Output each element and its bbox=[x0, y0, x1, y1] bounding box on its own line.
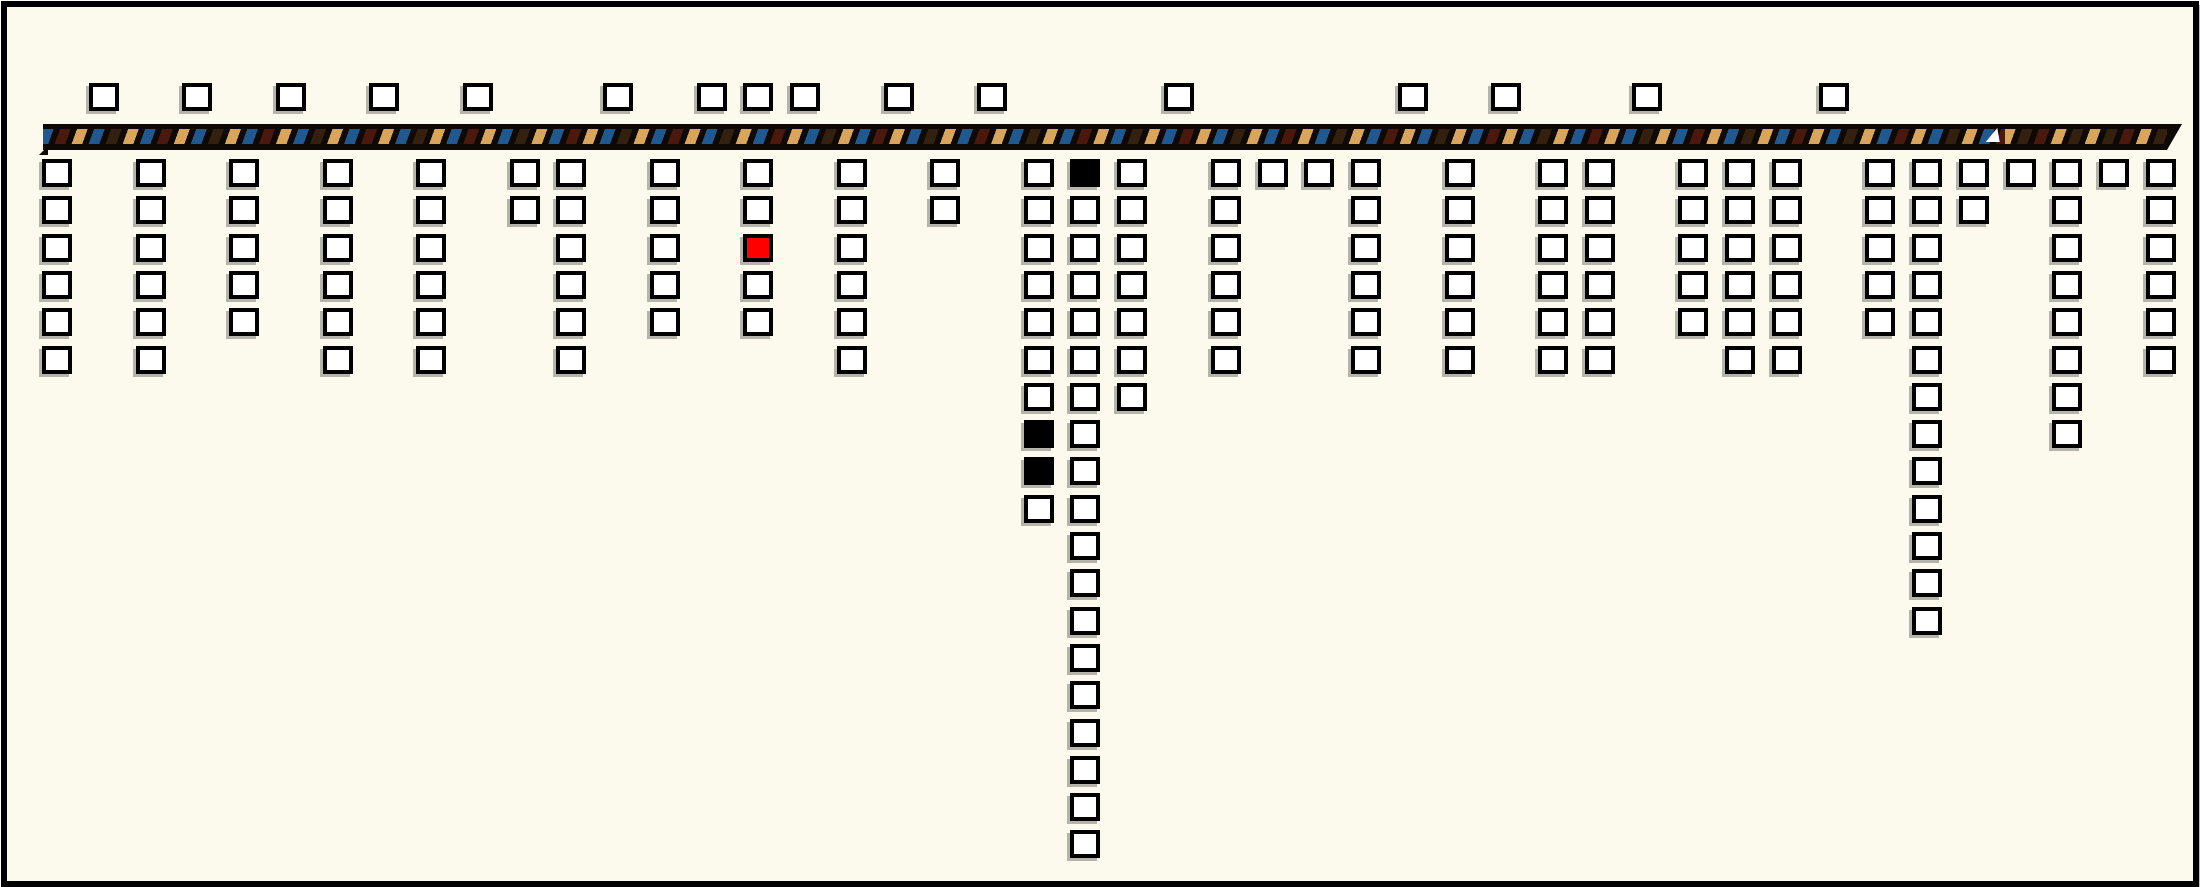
pendant-square[interactable] bbox=[1772, 159, 1802, 187]
pendant-square-black[interactable] bbox=[1024, 457, 1054, 485]
pendant-square[interactable] bbox=[323, 234, 353, 262]
pendant-square[interactable] bbox=[1912, 607, 1942, 635]
pendant-square[interactable] bbox=[42, 159, 72, 187]
pendant-square[interactable] bbox=[1117, 196, 1147, 224]
pendant-square[interactable] bbox=[1538, 234, 1568, 262]
pendant-square[interactable] bbox=[1024, 196, 1054, 224]
pendant-square[interactable] bbox=[1538, 159, 1568, 187]
pendant-square[interactable] bbox=[930, 159, 960, 187]
pendant-square[interactable] bbox=[650, 308, 680, 336]
pendant-square[interactable] bbox=[1351, 346, 1381, 374]
pendant-square[interactable] bbox=[1117, 234, 1147, 262]
pendant-square[interactable] bbox=[229, 271, 259, 299]
pendant-square[interactable] bbox=[1912, 457, 1942, 485]
pendant-square[interactable] bbox=[1070, 569, 1100, 597]
pendant-square[interactable] bbox=[556, 271, 586, 299]
pendant-square[interactable] bbox=[1070, 793, 1100, 821]
pendant-square[interactable] bbox=[1070, 383, 1100, 411]
pendant-square[interactable] bbox=[1538, 308, 1568, 336]
pendant-square[interactable] bbox=[1725, 308, 1755, 336]
pendant-square[interactable] bbox=[136, 308, 166, 336]
pendant-square[interactable] bbox=[1070, 234, 1100, 262]
pendant-square[interactable] bbox=[743, 271, 773, 299]
pendant-square[interactable] bbox=[1070, 756, 1100, 784]
main-cord-stripes-right-section bbox=[2005, 129, 2167, 144]
pendant-square[interactable] bbox=[1585, 271, 1615, 299]
pendant-square[interactable] bbox=[1912, 532, 1942, 560]
pendant-square[interactable] bbox=[1117, 271, 1147, 299]
pendant-square[interactable] bbox=[1912, 271, 1942, 299]
pendant-square[interactable] bbox=[1585, 159, 1615, 187]
pendant-square[interactable] bbox=[1070, 271, 1100, 299]
pendant-square[interactable] bbox=[2052, 346, 2082, 374]
pendant-square[interactable] bbox=[1024, 308, 1054, 336]
pendant-square[interactable] bbox=[42, 308, 72, 336]
pendant-square[interactable] bbox=[837, 196, 867, 224]
pendant-square[interactable] bbox=[1912, 420, 1942, 448]
pendant-square[interactable] bbox=[1959, 159, 1989, 187]
pendant-square[interactable] bbox=[1024, 234, 1054, 262]
pendant-square[interactable] bbox=[1912, 234, 1942, 262]
top-square[interactable] bbox=[1398, 83, 1428, 111]
pendant-square[interactable] bbox=[416, 308, 446, 336]
top-square[interactable] bbox=[884, 83, 914, 111]
pendant-square[interactable] bbox=[1678, 159, 1708, 187]
pendant-square[interactable] bbox=[2052, 159, 2082, 187]
pendant-square[interactable] bbox=[2146, 196, 2176, 224]
top-square[interactable] bbox=[977, 83, 1007, 111]
pendant-square[interactable] bbox=[1117, 308, 1147, 336]
top-square[interactable] bbox=[1632, 83, 1662, 111]
pendant-square-red[interactable] bbox=[743, 234, 773, 262]
pendant-square[interactable] bbox=[2052, 420, 2082, 448]
pendant-square[interactable] bbox=[1585, 308, 1615, 336]
pendant-square[interactable] bbox=[1725, 159, 1755, 187]
pendant-square[interactable] bbox=[1070, 607, 1100, 635]
pendant-square[interactable] bbox=[1772, 346, 1802, 374]
pendant-square[interactable] bbox=[1445, 346, 1475, 374]
pendant-square[interactable] bbox=[323, 308, 353, 336]
pendant-square[interactable] bbox=[1070, 644, 1100, 672]
pendant-square[interactable] bbox=[1678, 196, 1708, 224]
pendant-square[interactable] bbox=[42, 271, 72, 299]
pendant-square[interactable] bbox=[1070, 196, 1100, 224]
pendant-square[interactable] bbox=[1912, 569, 1942, 597]
pendant-square[interactable] bbox=[1772, 196, 1802, 224]
pendant-square[interactable] bbox=[1351, 271, 1381, 299]
pendant-square[interactable] bbox=[2099, 159, 2129, 187]
pendant-square[interactable] bbox=[1725, 234, 1755, 262]
pendant-square[interactable] bbox=[1538, 196, 1568, 224]
pendant-square[interactable] bbox=[1024, 346, 1054, 374]
pendant-square[interactable] bbox=[1024, 159, 1054, 187]
pendant-square[interactable] bbox=[2146, 271, 2176, 299]
pendant-square[interactable] bbox=[1959, 196, 1989, 224]
pendant-square[interactable] bbox=[1445, 308, 1475, 336]
top-square[interactable] bbox=[1819, 83, 1849, 111]
pendant-square[interactable] bbox=[1865, 271, 1895, 299]
pendant-square[interactable] bbox=[1585, 234, 1615, 262]
pendant-square[interactable] bbox=[1585, 346, 1615, 374]
pendant-square[interactable] bbox=[1070, 346, 1100, 374]
pendant-square[interactable] bbox=[323, 271, 353, 299]
pendant-square[interactable] bbox=[510, 159, 540, 187]
pendant-square[interactable] bbox=[1211, 196, 1241, 224]
pendant-square[interactable] bbox=[1351, 159, 1381, 187]
pendant-square[interactable] bbox=[1678, 271, 1708, 299]
pendant-square[interactable] bbox=[1912, 346, 1942, 374]
pendant-square[interactable] bbox=[1912, 159, 1942, 187]
pendant-square[interactable] bbox=[1117, 383, 1147, 411]
pendant-square[interactable] bbox=[556, 308, 586, 336]
pendant-square[interactable] bbox=[650, 234, 680, 262]
pendant-square[interactable] bbox=[1772, 308, 1802, 336]
top-square[interactable] bbox=[697, 83, 727, 111]
pendant-square[interactable] bbox=[1070, 420, 1100, 448]
pendant-square[interactable] bbox=[837, 159, 867, 187]
pendant-square[interactable] bbox=[1445, 159, 1475, 187]
pendant-square[interactable] bbox=[416, 271, 446, 299]
pendant-square[interactable] bbox=[2052, 383, 2082, 411]
pendant-square[interactable] bbox=[1725, 346, 1755, 374]
pendant-square[interactable] bbox=[2146, 346, 2176, 374]
pendant-square[interactable] bbox=[1538, 346, 1568, 374]
pendant-square[interactable] bbox=[416, 196, 446, 224]
pendant-square[interactable] bbox=[556, 234, 586, 262]
pendant-square[interactable] bbox=[1070, 532, 1100, 560]
pendant-square[interactable] bbox=[136, 271, 166, 299]
pendant-square[interactable] bbox=[1678, 234, 1708, 262]
pendant-square[interactable] bbox=[1772, 271, 1802, 299]
pendant-square[interactable] bbox=[1865, 159, 1895, 187]
diagram-canvas bbox=[0, 0, 2200, 887]
pendant-square-black[interactable] bbox=[1070, 159, 1100, 187]
pendant-square[interactable] bbox=[229, 196, 259, 224]
pendant-square[interactable] bbox=[743, 159, 773, 187]
pendant-square[interactable] bbox=[556, 346, 586, 374]
pendant-square[interactable] bbox=[1117, 159, 1147, 187]
top-square[interactable] bbox=[182, 83, 212, 111]
pendant-square[interactable] bbox=[1865, 234, 1895, 262]
pendant-square[interactable] bbox=[136, 234, 166, 262]
pendant-square[interactable] bbox=[323, 346, 353, 374]
pendant-square[interactable] bbox=[1070, 495, 1100, 523]
pendant-square[interactable] bbox=[1725, 271, 1755, 299]
pendant-square[interactable] bbox=[1070, 457, 1100, 485]
pendant-square[interactable] bbox=[1211, 346, 1241, 374]
pendant-square[interactable] bbox=[136, 346, 166, 374]
top-square[interactable] bbox=[1164, 83, 1194, 111]
main-cord-stripes bbox=[43, 129, 2167, 144]
pendant-square[interactable] bbox=[1351, 308, 1381, 336]
pendant-square[interactable] bbox=[416, 159, 446, 187]
pendant-square[interactable] bbox=[837, 346, 867, 374]
pendant-square[interactable] bbox=[1024, 495, 1054, 523]
pendant-square[interactable] bbox=[2006, 159, 2036, 187]
pendant-square[interactable] bbox=[510, 196, 540, 224]
pendant-square[interactable] bbox=[1678, 308, 1708, 336]
pendant-square[interactable] bbox=[2146, 159, 2176, 187]
pendant-square[interactable] bbox=[229, 159, 259, 187]
pendant-square[interactable] bbox=[1538, 271, 1568, 299]
top-square[interactable] bbox=[743, 83, 773, 111]
pendant-square[interactable] bbox=[1772, 234, 1802, 262]
pendant-square[interactable] bbox=[1585, 196, 1615, 224]
pendant-square[interactable] bbox=[930, 196, 960, 224]
pendant-square[interactable] bbox=[1912, 196, 1942, 224]
top-square[interactable] bbox=[790, 83, 820, 111]
pendant-square[interactable] bbox=[2146, 308, 2176, 336]
pendant-square[interactable] bbox=[416, 346, 446, 374]
pendant-square[interactable] bbox=[1070, 681, 1100, 709]
pendant-square[interactable] bbox=[743, 196, 773, 224]
main-cord bbox=[43, 124, 2167, 150]
top-square[interactable] bbox=[276, 83, 306, 111]
pendant-square[interactable] bbox=[1865, 196, 1895, 224]
cord-start-tail bbox=[39, 146, 48, 155]
pendant-square[interactable] bbox=[1117, 346, 1147, 374]
pendant-square[interactable] bbox=[1211, 308, 1241, 336]
pendant-square[interactable] bbox=[42, 234, 72, 262]
pendant-square[interactable] bbox=[1024, 383, 1054, 411]
pendant-square[interactable] bbox=[556, 159, 586, 187]
pendant-square[interactable] bbox=[837, 271, 867, 299]
cord-end-tip bbox=[2167, 124, 2182, 150]
pendant-square[interactable] bbox=[650, 271, 680, 299]
pendant-square[interactable] bbox=[136, 159, 166, 187]
pendant-square[interactable] bbox=[1912, 495, 1942, 523]
pendant-square[interactable] bbox=[1725, 196, 1755, 224]
pendant-square[interactable] bbox=[1070, 719, 1100, 747]
pendant-square[interactable] bbox=[1865, 308, 1895, 336]
pendant-square[interactable] bbox=[42, 196, 72, 224]
pendant-square[interactable] bbox=[1211, 234, 1241, 262]
pendant-square[interactable] bbox=[229, 234, 259, 262]
pendant-square[interactable] bbox=[2146, 234, 2176, 262]
pendant-square[interactable] bbox=[837, 308, 867, 336]
pendant-square[interactable] bbox=[1445, 234, 1475, 262]
pendant-square[interactable] bbox=[650, 196, 680, 224]
pendant-square[interactable] bbox=[1258, 159, 1288, 187]
pendant-square[interactable] bbox=[1445, 271, 1475, 299]
pendant-square[interactable] bbox=[1351, 234, 1381, 262]
pendant-square[interactable] bbox=[650, 159, 680, 187]
top-square[interactable] bbox=[1491, 83, 1521, 111]
top-square[interactable] bbox=[89, 83, 119, 111]
pendant-square[interactable] bbox=[1912, 383, 1942, 411]
pendant-square[interactable] bbox=[42, 346, 72, 374]
top-square[interactable] bbox=[463, 83, 493, 111]
pendant-square[interactable] bbox=[1304, 159, 1334, 187]
pendant-square[interactable] bbox=[2052, 271, 2082, 299]
pendant-square[interactable] bbox=[416, 234, 446, 262]
pendant-square[interactable] bbox=[837, 234, 867, 262]
pendant-square[interactable] bbox=[1070, 308, 1100, 336]
pendant-square[interactable] bbox=[1445, 196, 1475, 224]
pendant-square[interactable] bbox=[1912, 308, 1942, 336]
pendant-square[interactable] bbox=[1070, 830, 1100, 858]
pendant-square[interactable] bbox=[323, 159, 353, 187]
pendant-square[interactable] bbox=[136, 196, 166, 224]
pendant-square[interactable] bbox=[2052, 308, 2082, 336]
pendant-square[interactable] bbox=[1024, 271, 1054, 299]
pendant-square[interactable] bbox=[323, 196, 353, 224]
pendant-square[interactable] bbox=[229, 308, 259, 336]
top-square[interactable] bbox=[603, 83, 633, 111]
pendant-square[interactable] bbox=[743, 308, 773, 336]
top-square[interactable] bbox=[369, 83, 399, 111]
pendant-square[interactable] bbox=[2052, 234, 2082, 262]
pendant-square[interactable] bbox=[2052, 196, 2082, 224]
pendant-square[interactable] bbox=[1351, 196, 1381, 224]
pendant-square-black[interactable] bbox=[1024, 420, 1054, 448]
pendant-square[interactable] bbox=[556, 196, 586, 224]
pendant-square[interactable] bbox=[1211, 271, 1241, 299]
diagram-frame bbox=[1, 1, 2199, 887]
pendant-square[interactable] bbox=[1211, 159, 1241, 187]
